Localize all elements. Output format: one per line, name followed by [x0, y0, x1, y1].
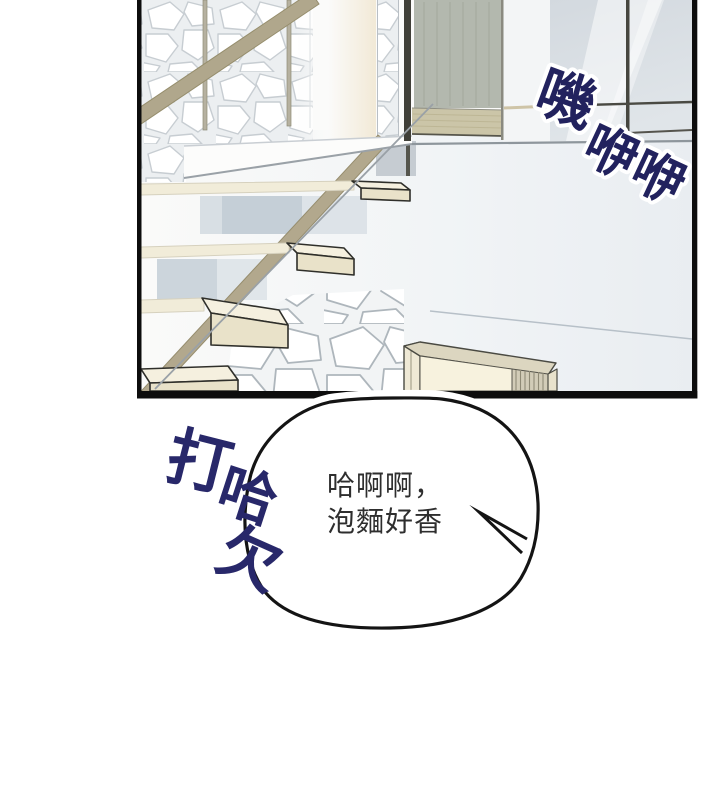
- comic-panel-art: 嘰 咿 咿 哈啊啊， 泡麵好香 打 哈 欠: [0, 0, 720, 800]
- step-band: [141, 298, 204, 313]
- comic-page: 嘰 咿 咿 哈啊啊， 泡麵好香 打 哈 欠: [0, 0, 720, 800]
- speech-bubble: 哈啊啊， 泡麵好香: [245, 398, 538, 628]
- window-mullion: [626, 0, 630, 140]
- panel-scene: [133, 0, 692, 408]
- speech-bubble-line-2: 泡麵好香: [327, 505, 443, 538]
- door-frame-post: [404, 0, 411, 141]
- panel-border-left: [137, 0, 142, 399]
- upper-door: [412, 0, 504, 140]
- panel-border-right: [692, 0, 697, 399]
- step-front: [361, 188, 410, 201]
- stone-pillar-strip: [377, 0, 399, 142]
- speech-bubble-line-1: 哈啊啊，: [327, 469, 443, 502]
